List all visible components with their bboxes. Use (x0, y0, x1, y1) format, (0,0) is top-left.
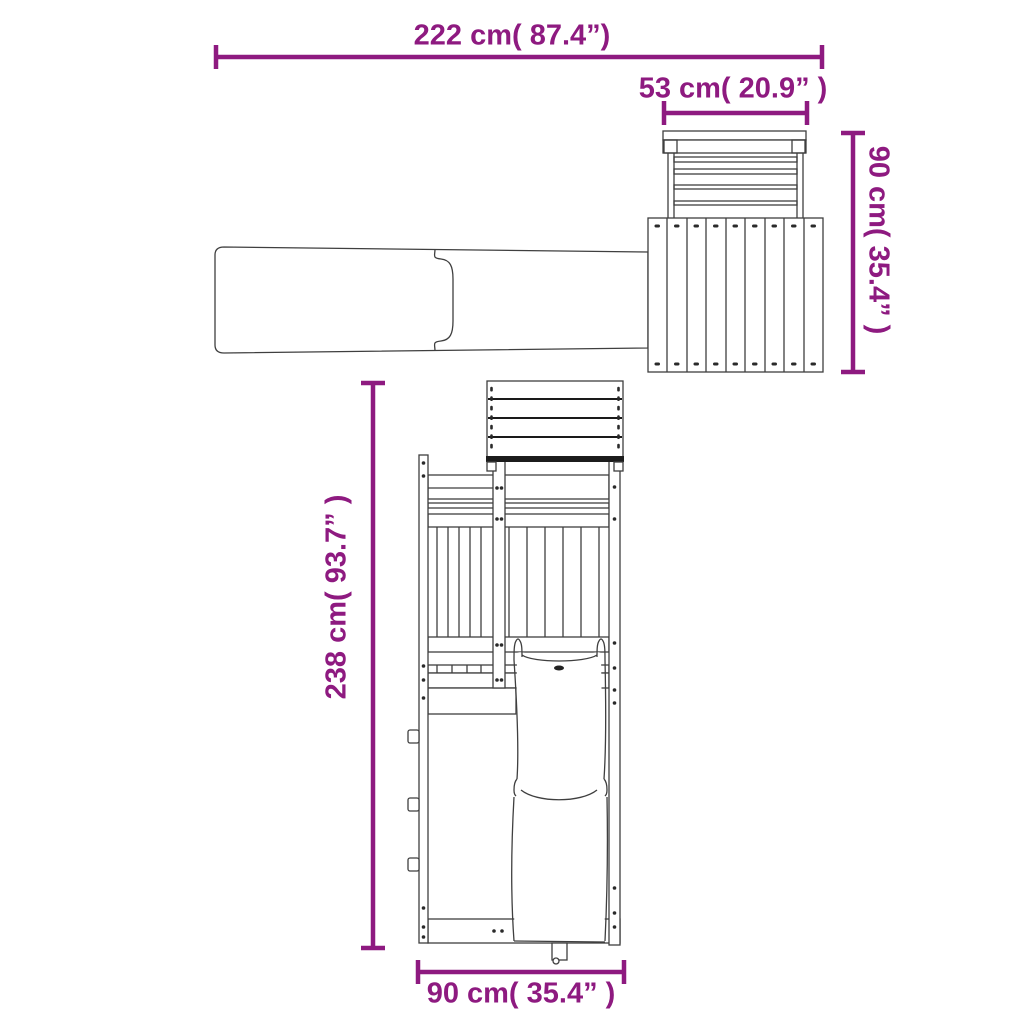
front-view (408, 381, 624, 964)
front-view-left-post (408, 455, 428, 943)
dim-label-total-height: 238 cm( 93.7” ) (321, 495, 354, 700)
front-view-roof (486, 381, 624, 471)
front-view-center-post (493, 459, 505, 688)
dim-label-top-width: 222 cm( 87.4”) (414, 20, 611, 53)
dim-label-side-depth: 90 cm( 35.4” ) (862, 146, 895, 335)
dim-label-railing-width: 53 cm( 20.9” ) (639, 73, 828, 106)
top-view-railing (663, 131, 806, 218)
top-view (215, 131, 823, 372)
front-view-wall-boards (428, 475, 609, 527)
product-dimension-diagram: 222 cm( 87.4”) 53 cm( 20.9” ) 90 cm( 35.… (0, 0, 1024, 1024)
dim-label-base-width: 90 cm( 35.4” ) (427, 978, 616, 1011)
front-view-slide (512, 639, 608, 964)
top-view-slide (215, 247, 648, 353)
front-view-balusters (437, 527, 599, 637)
dimension-line-total-height (361, 383, 385, 948)
front-view-right-post (609, 459, 620, 945)
top-view-deck (648, 218, 823, 372)
